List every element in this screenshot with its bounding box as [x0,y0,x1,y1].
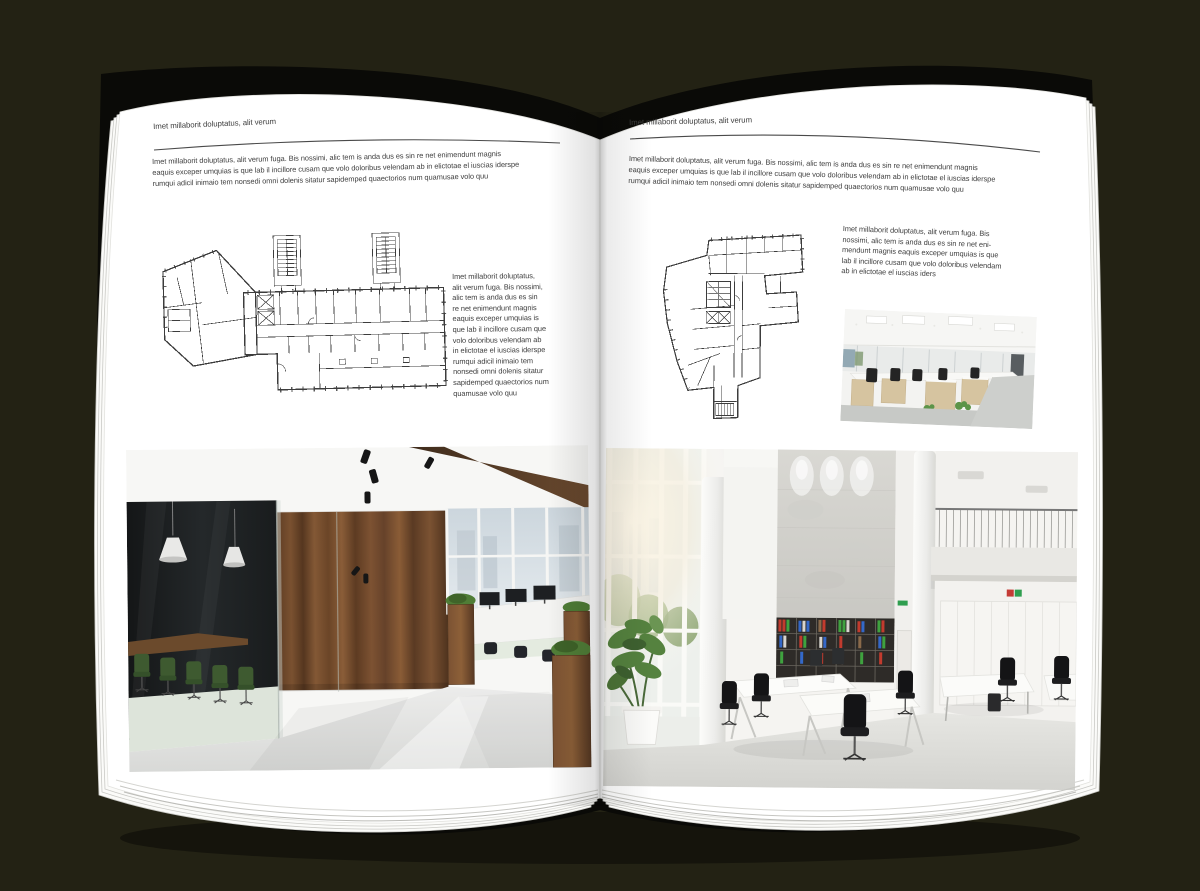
left-floor-plan [156,228,448,405]
air-vent [958,471,984,479]
wood-panel-wall [277,511,449,691]
office-photo-dark-wood [126,445,591,772]
exit-sign [898,601,908,606]
first-aid-sign [1007,590,1014,597]
right-page-caption: Imet millaborit doluptatus, alit verum f… [841,224,1047,284]
stair-tower-right [372,233,400,284]
concrete-feature-wall [777,450,896,619]
waste-bin [988,693,1001,711]
spotlight-glows [790,456,874,497]
right-floor-plan [650,225,809,422]
magazine-mockup: Imet millaborit doluptatus, alit verum I… [0,0,1200,891]
office-photo-small [840,309,1037,429]
left-page-caption: Imet millaborit doluptatus, alit verum f… [452,271,579,399]
air-vent [1026,486,1048,493]
glass-meeting-room [127,500,284,752]
first-aid-sign [1015,590,1022,597]
stair-tower-left [273,235,301,286]
right-header-rule [628,131,1042,157]
office-photo-loft [603,448,1078,790]
